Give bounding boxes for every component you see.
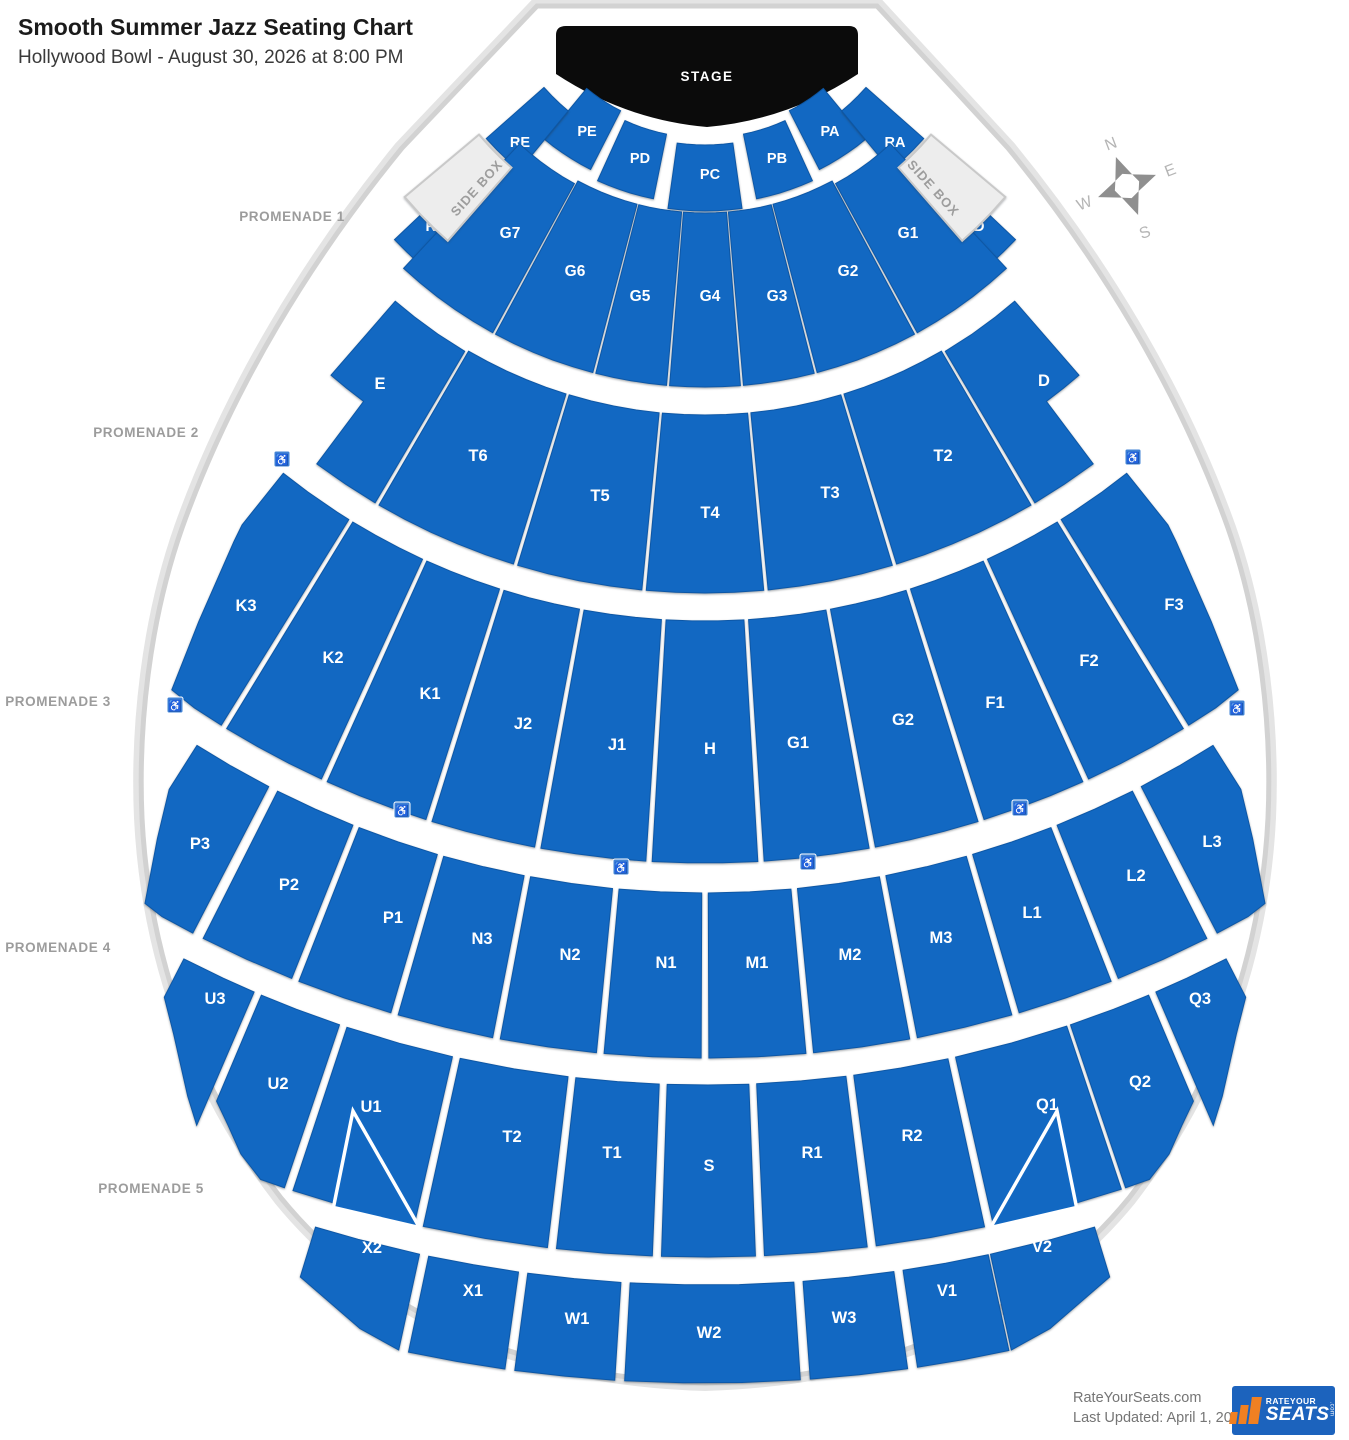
section-label-PE: PE (577, 124, 597, 140)
compass-letter-e: E (1162, 161, 1178, 181)
wheelchair-glyph: ♿ (1013, 803, 1027, 816)
promenade-label-5: PROMENADE 5 (98, 1181, 204, 1196)
section-label-N2: N2 (559, 946, 580, 964)
section-label-F2: F2 (1079, 652, 1098, 670)
promenade-label-1: PROMENADE 1 (239, 209, 345, 224)
section-label-F1: F1 (985, 694, 1004, 712)
section-label-V1: V1 (937, 1282, 957, 1300)
promenade-label-3: PROMENADE 3 (5, 694, 111, 709)
section-label-S: S (703, 1157, 714, 1175)
logo-bars-icon (1229, 1397, 1264, 1424)
section-label-G4: G4 (700, 288, 721, 305)
section-label-PD: PD (630, 151, 650, 167)
section-label-G3: G3 (767, 288, 788, 305)
section-label-L2: L2 (1126, 867, 1145, 885)
section-label-R2: R2 (901, 1127, 922, 1145)
compass-letter-s: S (1137, 223, 1153, 243)
wheelchair-glyph: ♿ (1230, 703, 1244, 716)
wheelchair-glyph: ♿ (395, 805, 409, 818)
page-title: Smooth Summer Jazz Seating Chart (18, 14, 413, 42)
section-label-U3: U3 (204, 990, 225, 1008)
section-label-U2: U2 (267, 1075, 288, 1093)
section-label-V2: V2 (1032, 1238, 1052, 1256)
section-label-W1: W1 (565, 1310, 590, 1328)
section-label-P1: P1 (383, 909, 403, 927)
promenade-label-2: PROMENADE 2 (93, 425, 199, 440)
rateyourseats-logo[interactable]: RATEYOUR SEATS .com (1232, 1386, 1335, 1435)
section-label-U1: U1 (360, 1098, 381, 1116)
section-label-G2-middle: G2 (892, 711, 914, 729)
section-label-K3: K3 (235, 597, 256, 615)
section-M1[interactable] (708, 889, 806, 1058)
section-label-L1: L1 (1022, 904, 1041, 922)
section-label-N1: N1 (655, 954, 676, 972)
wheelchair-glyph: ♿ (614, 862, 628, 875)
section-label-M2: M2 (839, 946, 862, 964)
section-label-Q1: Q1 (1036, 1096, 1058, 1114)
compass-letter-w: W (1074, 193, 1095, 215)
section-label-M3: M3 (930, 929, 953, 947)
section-label-N3: N3 (471, 930, 492, 948)
section-label-R1: R1 (801, 1144, 822, 1162)
section-label-P3: P3 (190, 835, 210, 853)
section-label-E: E (374, 375, 385, 393)
logo-main-text: SEATS (1266, 1405, 1329, 1424)
section-N1[interactable] (604, 889, 702, 1058)
section-label-PA: PA (820, 124, 840, 140)
section-label-D: D (1038, 372, 1050, 390)
page-subtitle: Hollywood Bowl - August 30, 2026 at 8:00… (18, 47, 413, 69)
stage-label: STAGE (680, 69, 733, 84)
section-label-T5: T5 (590, 487, 609, 505)
section-label-M1: M1 (746, 954, 769, 972)
compass-letter-n: N (1103, 134, 1120, 154)
section-label-J2: J2 (514, 715, 532, 733)
section-label-P2: P2 (279, 876, 299, 894)
section-label-F3: F3 (1164, 596, 1183, 614)
section-label-G2: G2 (838, 263, 859, 280)
section-label-T4: T4 (700, 504, 720, 522)
footer-site: RateYourSeats.com (1073, 1388, 1248, 1408)
logo-words: RATEYOUR SEATS .com (1266, 1397, 1336, 1425)
promenade-label-4: PROMENADE 4 (5, 940, 111, 955)
section-label-X2: X2 (362, 1239, 382, 1257)
seating-map: STAGEPEPDPCPBPARERARHRDG7G6G5G4G3G2G1ET6… (0, 0, 1349, 1440)
section-label-H: H (704, 740, 716, 758)
wheelchair-glyph: ♿ (801, 857, 815, 870)
wheelchair-glyph: ♿ (1126, 452, 1140, 465)
section-label-PB: PB (767, 151, 787, 167)
section-label-T6: T6 (468, 447, 487, 465)
section-label-J1: J1 (608, 736, 626, 754)
wheelchair-glyph: ♿ (275, 454, 289, 467)
footer-updated: Last Updated: April 1, 2026 (1073, 1408, 1248, 1428)
section-label-L3: L3 (1202, 833, 1221, 851)
section-label-K1: K1 (419, 685, 440, 703)
section-X1[interactable] (409, 1256, 519, 1369)
section-label-PC: PC (700, 167, 721, 183)
section-label-G1: G1 (898, 225, 919, 242)
section-label-W3: W3 (832, 1309, 857, 1327)
wheelchair-glyph: ♿ (168, 700, 182, 713)
section-label-Q3: Q3 (1189, 990, 1211, 1008)
section-label-G7: G7 (500, 225, 521, 242)
section-label-W2: W2 (697, 1324, 722, 1342)
section-label-X1: X1 (463, 1282, 483, 1300)
title-block: Smooth Summer Jazz Seating Chart Hollywo… (18, 14, 413, 69)
section-label-K2: K2 (322, 649, 343, 667)
footer: RateYourSeats.com Last Updated: April 1,… (1070, 1386, 1349, 1436)
section-label-T2-lower: T2 (502, 1128, 521, 1146)
section-label-G6: G6 (565, 263, 586, 280)
section-label-T1: T1 (602, 1144, 621, 1162)
footer-credit: RateYourSeats.com Last Updated: April 1,… (1073, 1388, 1248, 1429)
section-label-G1-middle: G1 (787, 734, 809, 752)
logo-com-text: .com (1329, 1401, 1335, 1416)
section-label-T3: T3 (820, 484, 839, 502)
section-label-Q2: Q2 (1129, 1073, 1151, 1091)
section-label-G5: G5 (630, 288, 651, 305)
section-label-T2: T2 (933, 447, 952, 465)
